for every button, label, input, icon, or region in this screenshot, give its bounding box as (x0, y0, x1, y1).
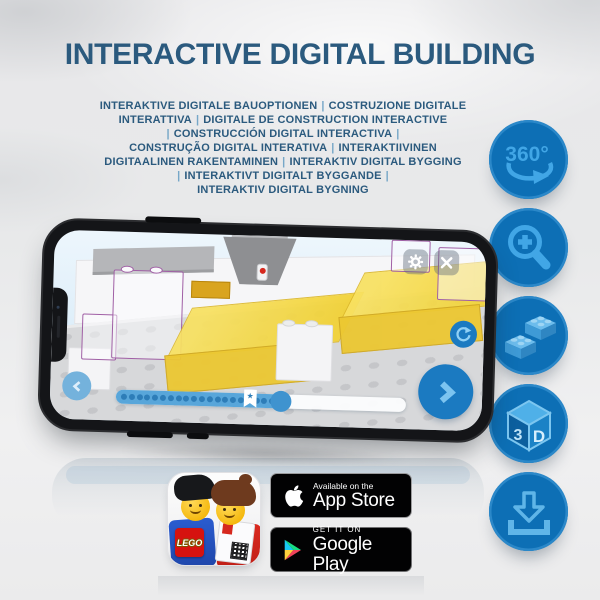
chevron-right-icon (432, 378, 459, 405)
google-play-icon (283, 538, 304, 562)
white-brick-center-shape (275, 323, 333, 381)
progress-dot (230, 397, 236, 403)
multilingual-subtitle: INTERAKTIVE DIGITALE BAUOPTIONEN|COSTRUZ… (48, 99, 518, 197)
progress-dot (129, 394, 135, 400)
phone-volume-button-2 (187, 433, 209, 440)
badges-reflection (158, 576, 424, 596)
app-screen: ★ (49, 230, 486, 432)
google-play-badge[interactable]: GET IT ON Google Play (270, 527, 412, 572)
minifig-boy-hair (173, 473, 216, 501)
lego-app-icon[interactable]: LEGO (167, 472, 261, 566)
svg-text:D: D (532, 427, 544, 446)
phone-mockup: ★ (37, 217, 499, 443)
qr-code (230, 542, 249, 561)
progress-dot (222, 397, 228, 403)
pipe-separator: | (166, 128, 169, 140)
svg-text:360°: 360° (505, 143, 548, 166)
360-rotation-icon: 360° (497, 128, 561, 192)
lego-logo: LEGO (175, 528, 204, 557)
feature-zoom-button[interactable] (489, 208, 568, 287)
pipe-separator: | (331, 142, 334, 154)
card-red-square (222, 523, 233, 534)
app-store-badge-text: Available on the App Store (313, 481, 395, 511)
download-icon (497, 480, 561, 544)
pipe-separator: | (177, 170, 180, 182)
google-play-badge-text: GET IT ON Google Play (313, 525, 411, 575)
progress-dot (175, 395, 181, 401)
page-title: INTERACTIVE DIGITAL BUILDING (0, 38, 600, 72)
feature-download-button[interactable] (489, 472, 568, 551)
subtitle-line: INTERATTIVA|DIGITALE DE CONSTRUCTION INT… (48, 113, 518, 127)
subtitle-line: CONSTRUÇÃO DIGITAL INTERATIVA|INTERAKTII… (48, 141, 518, 155)
subtitle-line: DIGITAALINEN RAKENTAMINEN|INTERAKTIV DIG… (48, 155, 518, 169)
app-store-badge[interactable]: Available on the App Store (270, 473, 412, 518)
progress-dot (144, 394, 150, 400)
app-store-name: App Store (313, 491, 395, 511)
progress-dot (199, 396, 205, 402)
pipe-separator: | (321, 100, 324, 112)
gear-icon (407, 253, 424, 270)
feature-brick-options-button[interactable] (489, 296, 568, 375)
close-button[interactable] (434, 250, 460, 276)
amber-brick-shape (191, 281, 230, 299)
pipe-separator: | (386, 170, 389, 182)
phone-power-button (145, 216, 201, 224)
pipe-separator: | (282, 156, 285, 168)
google-play-tagline: GET IT ON (313, 525, 411, 535)
progress-dot (261, 398, 267, 404)
stud-shape (150, 266, 163, 273)
close-icon (439, 255, 454, 270)
subtitle-line: INTERAKTIVE DIGITALE BAUOPTIONEN|COSTRUZ… (48, 99, 518, 113)
subtitle-line: |CONSTRUCCIÓN DIGITAL INTERACTIVA| (48, 127, 518, 141)
instruction-card (215, 519, 256, 565)
minifig-girl-hair (211, 480, 256, 506)
minifigure-shape (256, 264, 267, 281)
marketing-page: { "header": { "title": "INTERACTIVE DIGI… (0, 0, 600, 600)
chevron-left-icon (70, 379, 84, 393)
app-store-tagline: Available on the (313, 481, 395, 491)
pipe-separator: | (196, 114, 199, 126)
progress-dot (183, 396, 189, 402)
feature-3d-view-button[interactable]: 3 D (489, 384, 568, 463)
google-play-name: Google Play (313, 535, 411, 575)
stud-shape (305, 320, 318, 327)
apple-icon (283, 483, 304, 508)
stud-shape (282, 319, 295, 326)
stud-shape (120, 265, 133, 272)
feature-360-rotation-button[interactable]: 360° (489, 120, 568, 199)
progress-dot (152, 395, 158, 401)
bricks-icon (497, 304, 561, 368)
camera-notch (51, 287, 68, 361)
zoom-in-icon (497, 216, 561, 280)
svg-text:3: 3 (513, 427, 522, 444)
progress-dot (238, 397, 244, 403)
phone-reflection (52, 458, 484, 530)
3d-cube-icon: 3 D (497, 392, 561, 456)
progress-dot (121, 394, 127, 400)
subtitle-line: INTERAKTIV DIGITAL BYGNING (48, 183, 518, 197)
progress-dot (160, 395, 166, 401)
progress-dot (214, 396, 220, 402)
settings-button[interactable] (403, 249, 429, 275)
subtitle-line: |INTERAKTIVT DIGITALT BYGGANDE| (48, 169, 518, 183)
progress-dot (207, 396, 213, 402)
progress-dot (168, 395, 174, 401)
progress-dot (191, 396, 197, 402)
phone-volume-button (127, 431, 173, 438)
pipe-separator: | (396, 128, 399, 140)
progress-dot (136, 394, 142, 400)
rotate-icon (455, 326, 472, 343)
